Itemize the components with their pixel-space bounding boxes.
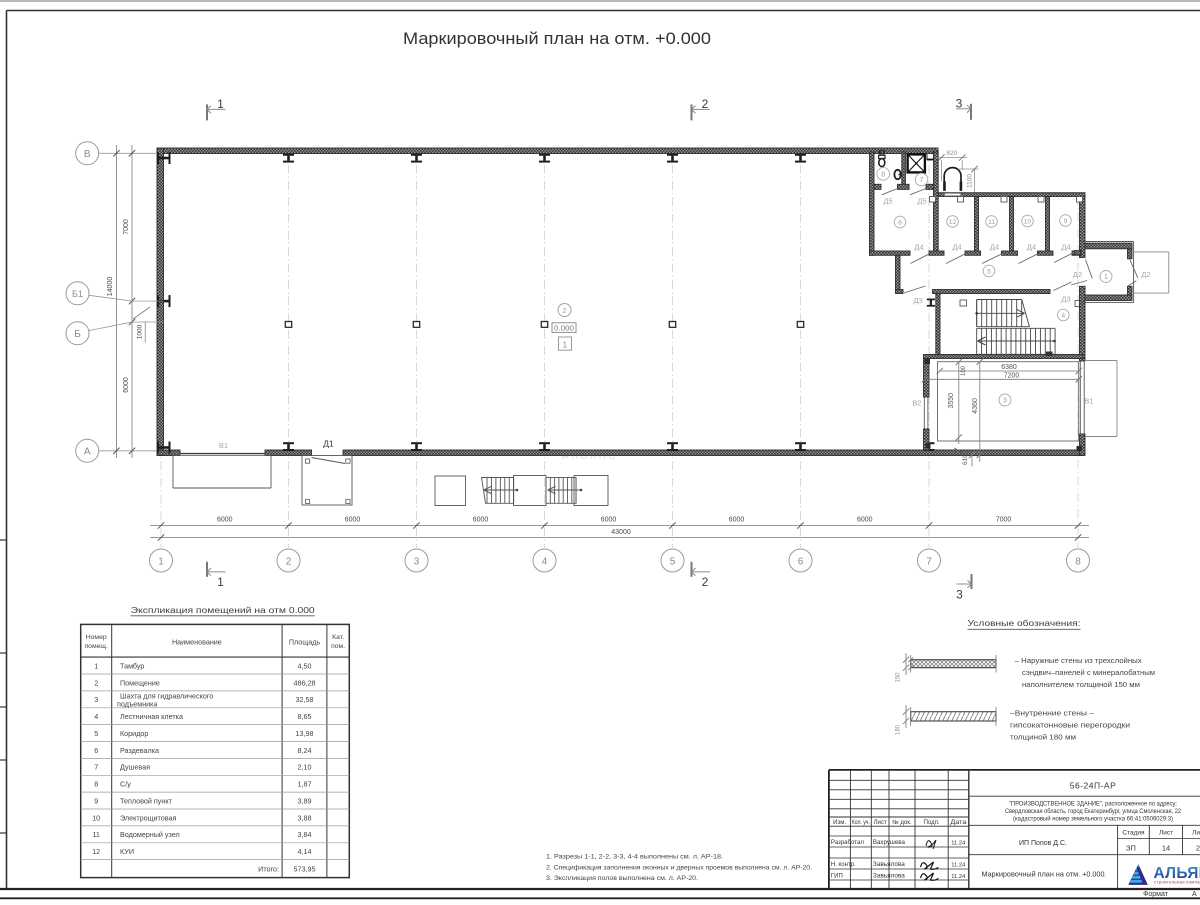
svg-text:43000: 43000 [611,529,631,536]
svg-text:6: 6 [798,556,804,567]
svg-text:Раздевалка: Раздевалка [120,746,159,755]
svg-text:гипсокатонновые перегородки: гипсокатонновые перегородки [1010,721,1130,730]
svg-text:4,50: 4,50 [298,661,312,670]
svg-text:8: 8 [881,172,885,179]
svg-text:1: 1 [158,556,164,567]
svg-text:Д2: Д2 [1073,270,1082,279]
svg-text:помещ.: помещ. [84,643,108,650]
svg-text:Помещение: Помещение [120,678,160,687]
svg-text:14: 14 [1162,844,1170,853]
svg-text:1: 1 [94,661,98,670]
svg-text:11.24: 11.24 [951,874,966,880]
svg-text:Лестничная клетка: Лестничная клетка [120,712,183,721]
svg-text:Тамбур: Тамбур [120,661,144,670]
svg-text:3: 3 [414,556,420,567]
svg-text:3: 3 [956,96,963,110]
svg-text:1: 1 [563,341,568,350]
svg-text:7200: 7200 [1004,373,1020,380]
svg-text:2: 2 [94,678,98,687]
svg-text:Свердловская область, город Ек: Свердловская область, город Екатеринбург… [1005,809,1182,815]
svg-text:6000: 6000 [473,517,489,524]
svg-text:Д2: Д2 [1141,270,1150,279]
svg-text:7000: 7000 [123,219,130,235]
svg-text:11.24: 11.24 [951,863,966,869]
svg-text:2: 2 [562,306,566,315]
svg-text:7: 7 [920,177,924,184]
svg-text:5: 5 [94,729,98,738]
svg-text:11: 11 [988,219,995,226]
svg-text:А: А [1192,891,1197,898]
svg-text:наполнителем толщиной 150 мм: наполнителем толщиной 150 мм [1022,680,1140,689]
svg-text:3: 3 [1003,398,1007,405]
svg-text:КУИ: КУИ [120,847,134,856]
svg-text:ГИП: ГИП [831,873,843,879]
svg-text:Водомерный узел: Водомерный узел [120,830,180,839]
svg-text:ИП Попов Д.С.: ИП Попов Д.С. [1019,840,1067,847]
svg-text:2: 2 [702,97,709,111]
svg-text:573,95: 573,95 [294,864,316,873]
svg-text:6000: 6000 [601,517,617,524]
svg-text:13,98: 13,98 [296,729,314,738]
svg-text:10: 10 [1024,219,1032,226]
svg-text:2: 2 [702,575,709,589]
svg-text:2: 2 [1196,844,1200,853]
svg-text:Подп.: Подп. [924,820,940,826]
svg-text:"ПРОИЗВОДСТВЕННОЕ ЗДАНИЕ", рас: "ПРОИЗВОДСТВЕННОЕ ЗДАНИЕ", расположенное… [1009,802,1177,808]
svg-text:1,87: 1,87 [298,780,312,789]
svg-text:– Наружные стены из трехслойны: – Наружные стены из трехслойных [1015,656,1142,665]
svg-text:Лист: Лист [1159,830,1173,837]
svg-text:4360: 4360 [972,398,979,414]
svg-text:Маркировочный план на отм. +0.: Маркировочный план на отм. +0.000 [403,30,711,48]
svg-text:8: 8 [1075,556,1081,567]
svg-text:610: 610 [962,454,969,465]
svg-text:7: 7 [926,556,932,567]
svg-text:толщиной 180 мм: толщиной 180 мм [1010,733,1076,742]
svg-text:7000: 7000 [996,517,1012,524]
svg-text:–Внутренние стены –: –Внутренние стены – [1010,709,1095,718]
svg-text:Б: Б [74,329,81,340]
svg-text:8: 8 [94,780,98,789]
svg-text:Коридор: Коридор [120,729,148,738]
svg-text:6000: 6000 [345,517,361,524]
svg-text:Номер: Номер [86,634,107,641]
svg-text:ЗП: ЗП [1126,844,1136,853]
svg-text:4,14: 4,14 [298,847,312,856]
svg-text:А: А [84,447,91,458]
svg-text:6000: 6000 [123,377,130,393]
svg-text:1: 1 [217,575,224,589]
svg-text:Д5: Д5 [883,196,892,205]
svg-text:С/у: С/у [120,780,131,789]
svg-text:Экспликация помещений на отм 0: Экспликация помещений на отм 0.000 [131,606,316,615]
svg-text:Электрощитовая: Электрощитовая [120,813,177,822]
svg-text:9: 9 [94,796,98,805]
svg-text:1100: 1100 [967,174,974,188]
svg-text:9: 9 [1064,218,1068,225]
svg-text:В1: В1 [1084,396,1093,405]
svg-text:6000: 6000 [217,517,233,524]
svg-text:Условные обозначения:: Условные обозначения: [968,618,1081,628]
svg-text:Д4: Д4 [1027,242,1036,251]
svg-text:Разработал: Разработал [831,840,864,846]
svg-text:11: 11 [92,830,99,839]
svg-text:12: 12 [92,847,100,856]
svg-text:3550: 3550 [948,393,955,409]
svg-text:6: 6 [898,220,902,227]
svg-text:Вахрушева: Вахрушева [873,840,906,846]
svg-text:Д3: Д3 [913,296,922,305]
svg-text:Д4: Д4 [952,242,961,251]
svg-text:8,65: 8,65 [298,712,312,721]
svg-text:10: 10 [92,813,100,822]
svg-text:1. Разрезы 1-1, 2-2, 3-3, 4-4: 1. Разрезы 1-1, 2-2, 3-3, 4-4 выполнены … [546,854,723,861]
svg-text:6000: 6000 [857,517,873,524]
svg-text:Д4: Д4 [990,242,999,251]
svg-text:2,10: 2,10 [298,763,312,772]
svg-text:4: 4 [542,556,548,567]
svg-text:4: 4 [94,712,98,721]
svg-text:Тепловой пункт: Тепловой пункт [120,796,173,805]
svg-text:Площадь: Площадь [289,638,321,647]
svg-text:(кадастровый номер земельного: (кадастровый номер земельного участка 66… [1013,816,1173,823]
svg-text:Кат.: Кат. [332,634,344,641]
svg-text:Лист: Лист [874,820,887,826]
svg-text:6: 6 [94,746,98,755]
svg-text:Кол. уч.: Кол. уч. [852,820,870,826]
svg-text:2: 2 [286,556,292,567]
svg-text:2. Спецификация заполнения око: 2. Спецификация заполнения оконных и две… [546,864,812,871]
svg-text:подъемника: подъемника [117,699,157,708]
svg-text:строительная компан: строительная компан [1154,879,1200,884]
svg-text:Н. контр.: Н. контр. [831,862,856,868]
svg-text:1000: 1000 [137,324,144,339]
svg-text:14000: 14000 [107,277,114,297]
svg-text:3,88: 3,88 [298,813,312,822]
svg-text:180: 180 [896,724,902,735]
svg-text:100: 100 [961,365,967,376]
svg-text:3,84: 3,84 [298,830,312,839]
svg-text:Д3: Д3 [1061,295,1070,304]
svg-text:820: 820 [946,150,957,157]
svg-text:1: 1 [1104,274,1108,281]
svg-text:Д5: Д5 [917,196,926,205]
svg-text:Наименование: Наименование [172,638,222,647]
svg-text:3,89: 3,89 [298,796,312,805]
svg-text:Душевая: Душевая [120,763,150,772]
svg-text:32,58: 32,58 [296,695,314,704]
svg-text:Д4: Д4 [1061,242,1070,251]
svg-text:486,28: 486,28 [294,678,316,687]
svg-text:Стадия: Стадия [1122,830,1145,837]
svg-text:Д4: Д4 [914,242,923,251]
svg-text:Б1: Б1 [72,289,83,299]
svg-text:В: В [84,149,91,160]
svg-text:Дата: Дата [950,820,967,826]
svg-text:№ док.: № док. [892,819,912,826]
svg-text:12: 12 [949,219,957,226]
svg-text:7: 7 [94,763,98,772]
svg-text:Итого:: Итого: [258,864,279,873]
svg-text:сэндвич–панелей с минералобатн: сэндвич–панелей с минералобатным [1022,668,1155,677]
svg-text:1: 1 [217,97,224,111]
svg-text:Завьялова: Завьялова [873,873,906,879]
svg-text:Д1: Д1 [323,439,334,449]
svg-text:6380: 6380 [1001,364,1017,371]
svg-text:5: 5 [670,556,676,567]
svg-text:Изм.: Изм. [833,820,846,826]
svg-text:3: 3 [94,695,98,704]
svg-text:5: 5 [987,269,991,276]
svg-text:пом.: пом. [331,643,345,650]
svg-text:Формат: Формат [1143,891,1169,898]
svg-text:Ли: Ли [1192,830,1200,837]
svg-text:3. Экспликация полов выполнена: 3. Экспликация полов выполнена см. л. АР… [546,875,698,882]
svg-text:56-24П-АР: 56-24П-АР [1070,781,1117,791]
svg-text:8,24: 8,24 [298,746,312,755]
svg-text:4: 4 [1061,313,1065,320]
svg-text:150: 150 [896,672,902,683]
svg-text:В2: В2 [912,399,921,408]
svg-text:3: 3 [956,587,963,601]
svg-text:11.24: 11.24 [951,841,966,847]
svg-text:В1: В1 [219,441,228,450]
svg-text:Завьялова: Завьялова [873,862,906,868]
svg-text:0.000: 0.000 [554,323,574,332]
svg-text:Маркировочный план на отм. +0.: Маркировочный план на отм. +0.000. [982,870,1107,879]
svg-text:6000: 6000 [729,517,745,524]
